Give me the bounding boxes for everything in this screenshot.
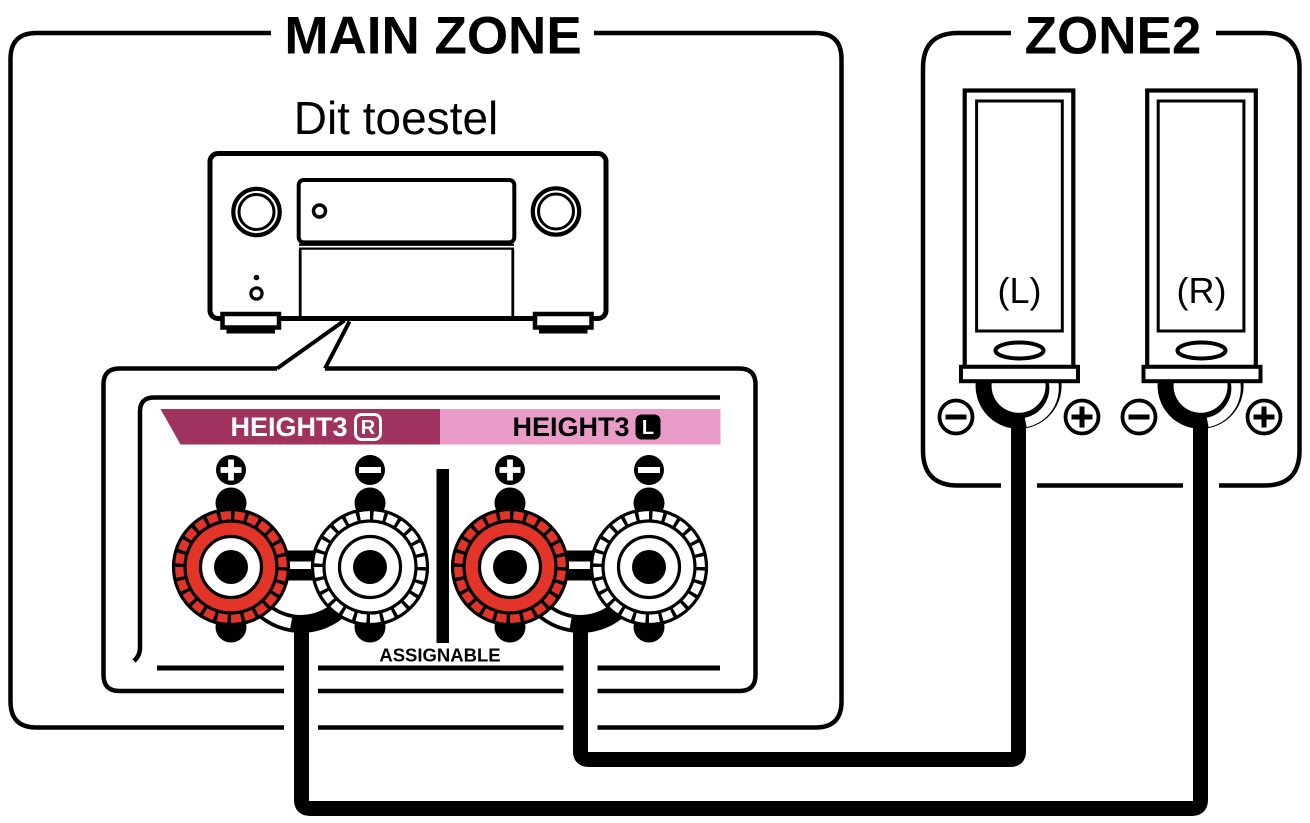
- svg-text:ASSIGNABLE: ASSIGNABLE: [379, 645, 500, 666]
- svg-text:R: R: [361, 417, 376, 439]
- svg-text:(L): (L): [998, 270, 1042, 311]
- svg-text:Dit toestel: Dit toestel: [294, 92, 499, 144]
- svg-text:(R): (R): [1177, 270, 1227, 311]
- svg-text:HEIGHT3: HEIGHT3: [512, 412, 629, 442]
- svg-text:HEIGHT3: HEIGHT3: [230, 412, 347, 442]
- svg-text:ZONE2: ZONE2: [1025, 7, 1202, 66]
- svg-text:MAIN ZONE: MAIN ZONE: [284, 7, 581, 66]
- svg-text:L: L: [642, 417, 654, 439]
